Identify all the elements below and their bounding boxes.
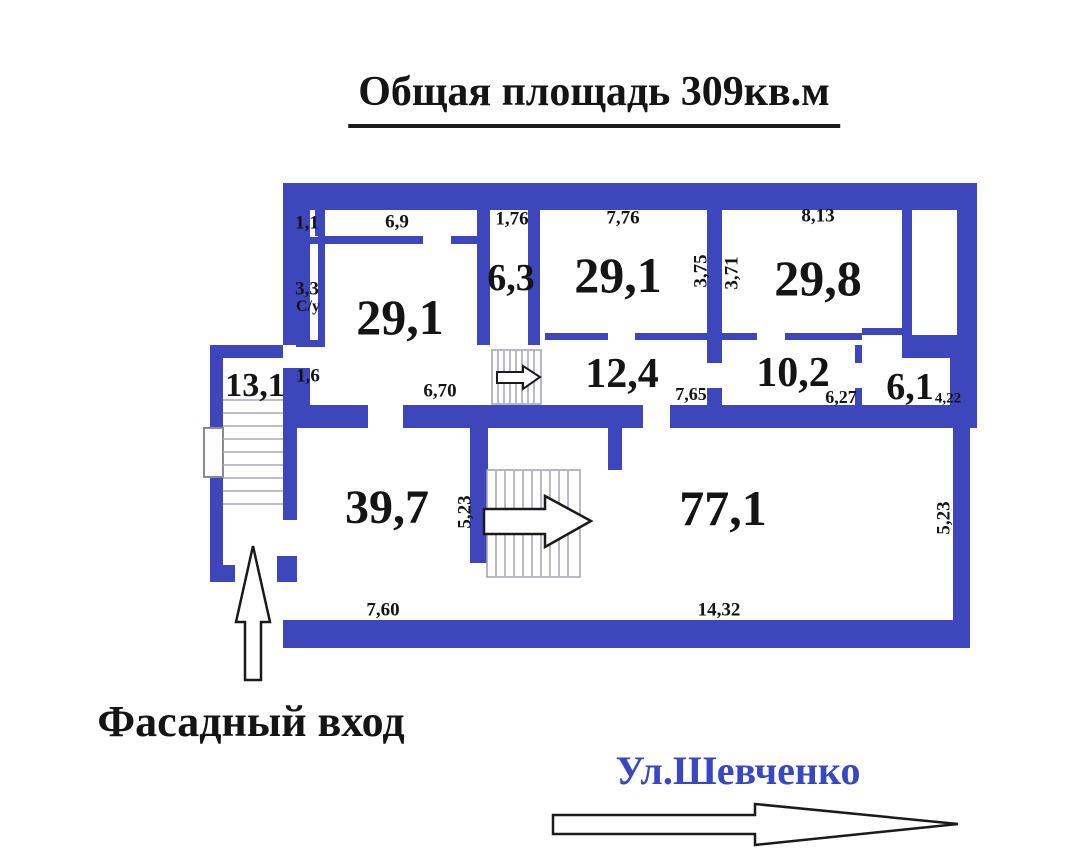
dimension-label-3-75: 3,75: [692, 254, 711, 287]
dimension-label-7-60: 7,60: [366, 601, 399, 620]
window-icon: [204, 428, 223, 477]
room-area-label-6-3: 6,3: [487, 259, 535, 297]
room-area-label-stairwell: 13,1: [225, 369, 285, 403]
room-area-label-top-mid: 29,1: [574, 250, 662, 300]
page-title: Общая площадь 309кв.м: [348, 68, 840, 128]
main-stairs-icon: [484, 470, 591, 577]
corridor-stairs-icon: [492, 350, 541, 404]
dimension-label-5-23-mid: 5,23: [456, 495, 475, 528]
dimension-label-1-6: 1,6: [296, 367, 320, 386]
dimension-label-3-71: 3,71: [723, 256, 742, 289]
dimension-label-5-23-right: 5,23: [935, 501, 954, 534]
entrance-label: Фасадный вход: [97, 700, 404, 744]
floor-plan-page: Общая площадь 309кв.м 29,1 6,3 29,1 29,8…: [0, 0, 1080, 858]
room-area-label-10-2: 10,2: [756, 352, 830, 394]
dimension-label-6-70: 6,70: [423, 382, 456, 401]
dimension-label-6-27: 6,27: [825, 388, 857, 406]
room-area-label-top-left: 29,1: [356, 292, 444, 342]
room-area-label-77-1: 77,1: [679, 483, 767, 533]
dimension-label-3-3: 3,3: [295, 280, 319, 299]
dimension-label-1-1: 1,1: [295, 214, 319, 233]
stairwell-stairs-icon: [223, 400, 283, 504]
room-area-label-12-4: 12,4: [585, 353, 659, 395]
entrance-up-arrow-icon: [236, 546, 270, 680]
room-area-label-6-1: 6,1: [886, 368, 934, 406]
dimension-label-4-22: 4,22: [935, 392, 961, 407]
dimension-label-6-9: 6,9: [385, 213, 409, 232]
room-area-label-top-right: 29,8: [774, 253, 862, 303]
dimension-label-7-76: 7,76: [606, 209, 639, 228]
dimension-label-7-65: 7,65: [675, 385, 707, 403]
dimension-label-su: С/у: [296, 299, 320, 315]
room-area-label-39-7: 39,7: [345, 484, 429, 532]
dimension-label-14-32: 14,32: [698, 601, 741, 620]
dimension-label-8-13: 8,13: [801, 207, 834, 226]
street-label: Ул.Шевченко: [616, 751, 861, 791]
dimension-label-1-76: 1,76: [495, 210, 528, 229]
street-direction-arrow-icon: [553, 804, 958, 845]
